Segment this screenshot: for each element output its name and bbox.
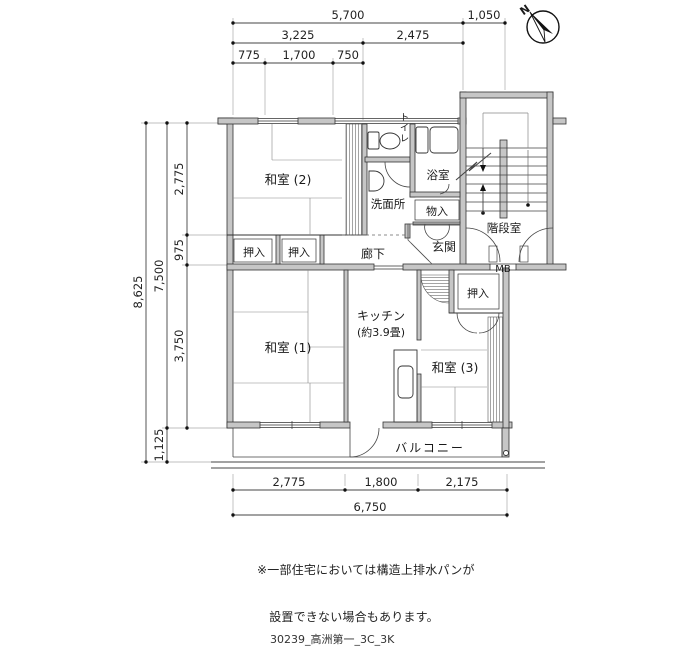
room-label-senmenjo: 洗面所: [371, 197, 406, 211]
wall-top: [218, 118, 258, 124]
dim-top-5700: 5,700: [332, 8, 365, 22]
room-label-rouka: 廊下: [361, 246, 385, 261]
note-line: 設置できない場合もあります。: [257, 610, 546, 626]
bathtub: [430, 127, 458, 153]
dim-bottom-2775: 2,775: [273, 475, 306, 489]
washbasin: [369, 171, 384, 191]
room-label-washitsu3: 和室 (3): [432, 360, 479, 375]
room-labels: 和室 (2) 和室 (1) 和室 (3) キッチン (約3.9畳) 廊下 押入 …: [243, 112, 521, 455]
dim-bottom-6750: 6,750: [354, 500, 387, 514]
dim-left-8625: 8,625: [131, 276, 145, 309]
room-label-kitchen-size: (約3.9畳): [357, 325, 405, 339]
room-label-kaidanshitsu: 階段室: [487, 221, 522, 235]
balcony-drain: [504, 451, 509, 456]
monoiri-door-arcs: [425, 224, 450, 240]
balcony-outline: [211, 428, 545, 468]
wall-right-lower: [503, 268, 509, 428]
stair-rail-wall: [500, 140, 507, 218]
room-label-monoiri: 物入: [426, 204, 448, 218]
wall-stair-right: [547, 92, 553, 268]
dim-left-7500: 7,500: [152, 260, 166, 293]
room-label-washitsu1: 和室 (1): [265, 340, 312, 355]
wall-bottom: [227, 422, 260, 428]
dim-top-750: 750: [337, 48, 359, 62]
wall-stair-top: [460, 92, 553, 98]
room-label-kitchen: キッチン: [357, 309, 405, 323]
entry-door-leaf-left: [489, 246, 497, 262]
room-label-mb: MB: [495, 264, 511, 275]
room-label-yokushitsu: 浴室: [427, 168, 450, 182]
wall-left: [227, 118, 233, 428]
dim-top-2475: 2,475: [397, 28, 430, 42]
entry-door-leaf-right: [520, 246, 528, 262]
dim-top-1050: 1,050: [468, 8, 501, 22]
dim-top-1700: 1,700: [283, 48, 316, 62]
room-label-oshiire-c: 押入: [467, 286, 489, 300]
stair-up-arrowhead: [480, 184, 486, 191]
dim-left-1125: 1,125: [152, 429, 166, 462]
room-label-genkan: 玄関: [432, 239, 456, 254]
room-label-washitsu2: 和室 (2): [265, 172, 312, 187]
room-label-oshiire-a: 押入: [243, 245, 265, 259]
balcony-door: [350, 428, 379, 457]
north-compass: N: [517, 2, 559, 43]
compass-north-label: N: [517, 2, 532, 18]
note-line: ※一部住宅においては構造上排水パンが: [257, 563, 546, 579]
dim-bottom-1800: 1,800: [365, 475, 398, 489]
washitsu3-hatch-strip: [488, 317, 503, 422]
dim-top-3225: 3,225: [282, 28, 315, 42]
dim-left-2775: 2,775: [172, 163, 186, 196]
room-label-toilet: トイレ: [398, 112, 410, 144]
dim-left-975: 975: [172, 239, 186, 261]
kitchen-sink: [398, 366, 413, 398]
wall-stair-left: [460, 92, 466, 268]
dim-top-775: 775: [238, 48, 260, 62]
toilet-tank: [368, 132, 379, 149]
drawing-id: 30239_高洲第一_3C_3K: [270, 631, 394, 647]
room-label-oshiire-b: 押入: [288, 245, 310, 259]
wall-mid: [227, 264, 374, 270]
stair-down-arrowhead: [480, 165, 486, 172]
dim-bottom-2175: 2,175: [446, 475, 479, 489]
kitchen-corner-hatch-fan: [421, 275, 449, 303]
engawa-hatch-strip: [346, 124, 362, 235]
dim-left-3750: 3,750: [172, 330, 186, 363]
hatched-areas: [346, 124, 503, 422]
floor-plan-page: 5,700 1,050 3,225 2,475 775 1,700 750 8,…: [0, 0, 700, 650]
room-label-balcony: バルコニー: [395, 441, 465, 455]
senmenjo-door-arc: [385, 162, 410, 187]
bath-step: [416, 127, 428, 153]
windows: [258, 119, 492, 430]
